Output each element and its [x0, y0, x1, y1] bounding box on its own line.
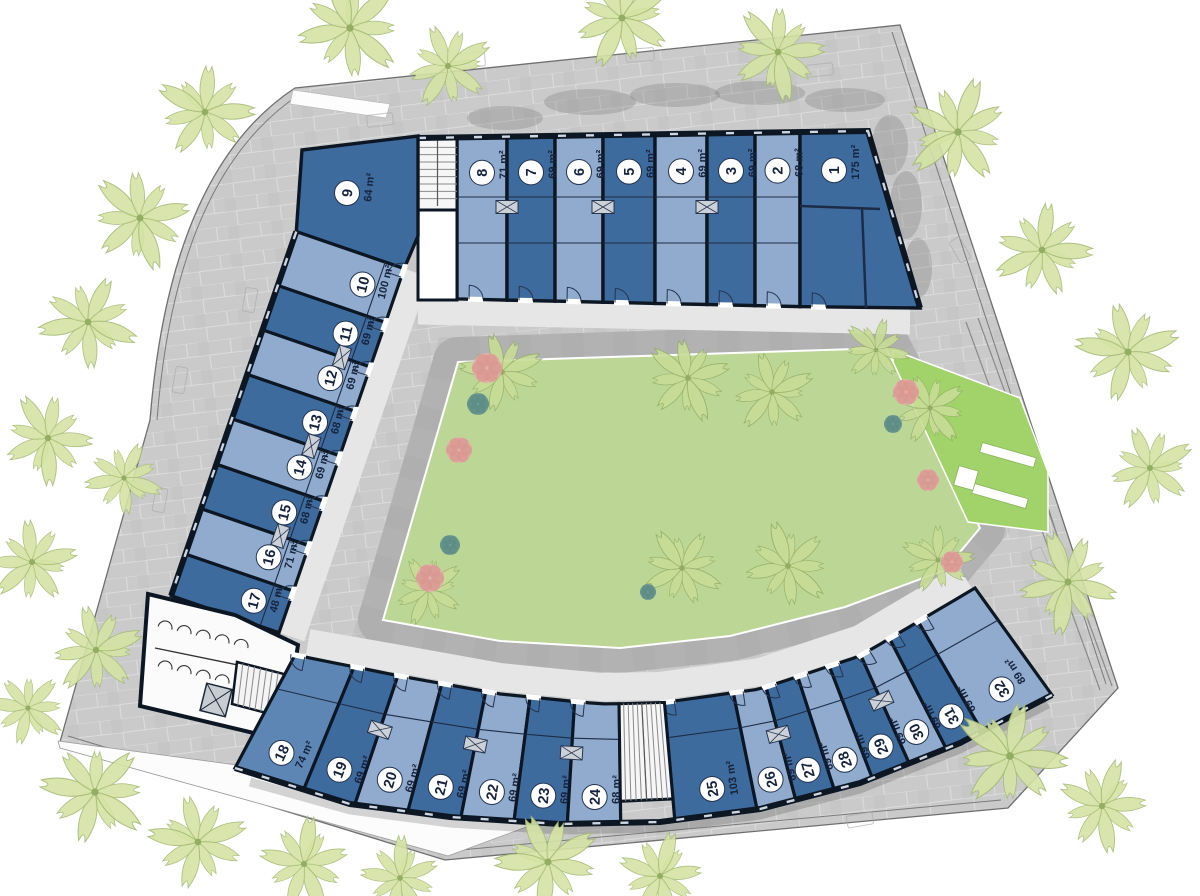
bush-pink	[893, 379, 919, 405]
unit-number: 3	[724, 167, 740, 175]
bush-teal	[884, 415, 902, 433]
bush-teal	[440, 535, 460, 555]
bathroom-core	[592, 201, 614, 214]
bathroom-core	[696, 201, 718, 214]
site-plan: 871 m²769 m²669 m²569 m²469 m²369 m²268 …	[0, 0, 1200, 896]
unit-number: 24	[588, 789, 604, 806]
unit-area: 68 m²	[610, 775, 623, 804]
bush-pink	[446, 437, 472, 463]
bush-pink	[917, 469, 939, 491]
unit-area: 69 m²	[697, 149, 709, 178]
floor-plan-page: 871 m²769 m²669 m²569 m²469 m²369 m²268 …	[0, 0, 1200, 896]
unit-number: 7	[524, 168, 540, 176]
unit-number: 9	[340, 188, 357, 198]
bush-pink	[416, 564, 444, 592]
paving-shadow	[544, 89, 636, 115]
unit-number: 25	[704, 780, 722, 798]
palm-tree	[0, 511, 85, 616]
palm-tree	[24, 260, 152, 388]
palm-tree	[1059, 282, 1194, 418]
bush-pink	[941, 551, 963, 573]
unit-area: 69 m²	[595, 149, 607, 178]
unit-area: 175 m²	[850, 144, 862, 179]
unit-number: 6	[572, 168, 588, 176]
walkway-north	[418, 312, 910, 322]
unit-number: 5	[622, 168, 638, 176]
unit-number: 23	[536, 787, 553, 805]
paving-shadow	[467, 106, 543, 130]
unit-number: 4	[674, 167, 690, 175]
unit-area: 69 m²	[747, 148, 759, 177]
bathroom-core	[496, 201, 518, 214]
palm-tree	[980, 189, 1106, 316]
palm-tree	[290, 0, 413, 87]
unit-number: 22	[484, 783, 502, 802]
south-stairwell	[619, 702, 673, 801]
unit-area: 69 m²	[645, 149, 657, 178]
unit-number: 8	[475, 169, 491, 177]
palm-tree	[1109, 425, 1195, 513]
unit-area: 68 m²	[793, 148, 805, 177]
unit-area: 71 m²	[498, 150, 510, 179]
unit-number: 2	[771, 167, 787, 175]
lobby	[418, 210, 457, 300]
unit-area: 69 m²	[547, 150, 559, 179]
unit-number: 1	[827, 166, 843, 174]
bush-pink	[472, 353, 502, 383]
paving-shadow	[630, 83, 720, 107]
elevator	[200, 683, 232, 716]
bathroom-core	[560, 746, 583, 760]
bush-teal	[467, 393, 489, 415]
paving-shadow	[805, 88, 885, 112]
bush-teal	[640, 584, 656, 600]
